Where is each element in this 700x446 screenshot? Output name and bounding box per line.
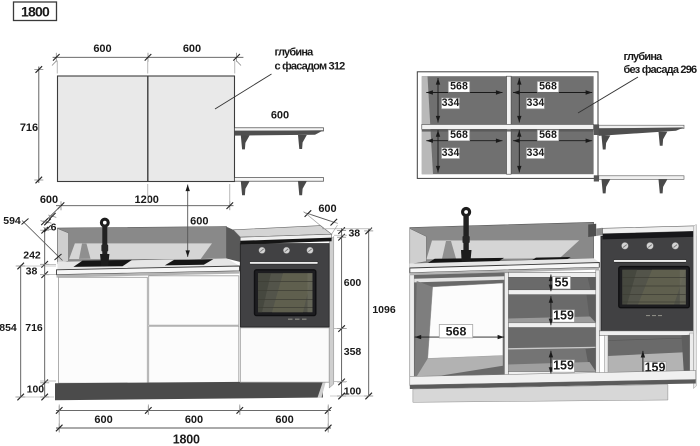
svg-text:854: 854 <box>0 322 17 334</box>
svg-text:600: 600 <box>275 414 293 426</box>
svg-text:глубина: глубина <box>275 47 315 59</box>
svg-text:38: 38 <box>26 266 38 278</box>
svg-text:159: 159 <box>553 359 574 373</box>
svg-text:600: 600 <box>190 215 208 227</box>
svg-text:с фасадом 312: с фасадом 312 <box>275 61 346 73</box>
svg-text:100: 100 <box>344 385 362 397</box>
svg-text:334: 334 <box>442 97 460 109</box>
svg-text:334: 334 <box>442 147 460 159</box>
svg-text:568: 568 <box>539 129 557 141</box>
svg-text:1200: 1200 <box>134 194 158 206</box>
svg-text:334: 334 <box>527 147 545 159</box>
svg-text:334: 334 <box>527 97 545 109</box>
svg-text:716: 716 <box>25 322 43 334</box>
svg-text:594: 594 <box>3 215 21 227</box>
svg-text:568: 568 <box>450 129 468 141</box>
svg-text:1096: 1096 <box>372 304 396 316</box>
svg-text:568: 568 <box>539 81 557 93</box>
svg-text:716: 716 <box>20 122 38 134</box>
svg-text:159: 159 <box>553 309 574 323</box>
svg-text:6: 6 <box>51 222 57 234</box>
svg-text:600: 600 <box>40 194 58 206</box>
svg-text:600: 600 <box>271 110 289 122</box>
svg-text:без фасада 296: без фасада 296 <box>624 64 698 76</box>
svg-text:глубина: глубина <box>624 51 664 63</box>
svg-text:1800: 1800 <box>21 4 50 20</box>
svg-text:568: 568 <box>446 324 467 338</box>
svg-text:600: 600 <box>185 414 203 426</box>
svg-text:568: 568 <box>450 81 468 93</box>
svg-text:1800: 1800 <box>173 433 200 446</box>
svg-text:38: 38 <box>348 227 360 239</box>
svg-text:100: 100 <box>27 384 45 396</box>
svg-text:358: 358 <box>344 346 362 358</box>
svg-text:600: 600 <box>344 277 362 289</box>
svg-text:600: 600 <box>318 203 336 215</box>
svg-text:55: 55 <box>555 275 569 289</box>
svg-text:600: 600 <box>183 43 201 55</box>
svg-text:600: 600 <box>94 414 112 426</box>
svg-text:242: 242 <box>23 250 41 262</box>
svg-text:600: 600 <box>93 43 111 55</box>
